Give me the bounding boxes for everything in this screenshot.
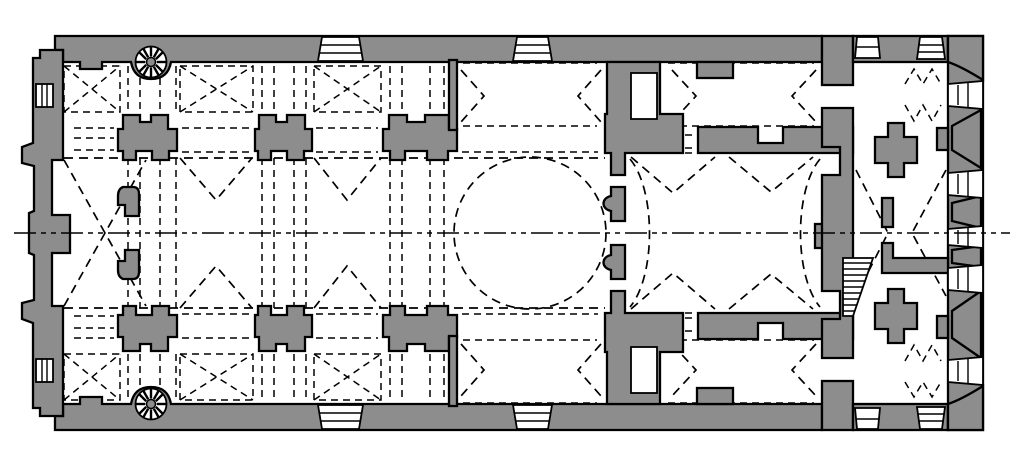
east-opening-3 — [948, 226, 983, 248]
floor-plan-image — [0, 0, 1024, 466]
jamb-south-hall-west — [449, 336, 457, 406]
spiral-staircase-north — [136, 47, 167, 78]
north-portal-4 — [917, 37, 945, 59]
pilaster-ne-hall — [697, 62, 733, 78]
pier-n4-passage — [631, 73, 657, 119]
inner-east-wall-bottom — [822, 381, 853, 430]
narthex-bar-pier-n — [882, 198, 893, 227]
west-slit-window-n — [36, 84, 53, 107]
west-slit-window-s — [36, 359, 53, 382]
spiral-staircase-south — [136, 389, 167, 420]
south-portal-1 — [318, 405, 363, 429]
north-portal-2 — [513, 37, 552, 61]
east-column-3 — [952, 246, 981, 267]
south-portal-4 — [917, 407, 945, 429]
floor-plan-svg — [0, 0, 1024, 466]
pilaster-se-hall — [697, 388, 733, 404]
east-opening-4 — [948, 265, 983, 293]
east-opening-2 — [948, 170, 983, 198]
south-portal-2 — [513, 405, 552, 429]
south-portal-3 — [855, 408, 880, 429]
jamb-north-hall-west — [449, 60, 457, 130]
east-opening-5 — [948, 357, 983, 385]
east-column-2 — [952, 196, 981, 228]
north-portal-1 — [318, 37, 363, 61]
inner-east-wall-top — [822, 36, 853, 85]
pier-s4-passage — [631, 347, 657, 393]
east-wall-respond-s — [937, 316, 948, 338]
east-opening-1 — [948, 81, 983, 109]
north-portal-3 — [855, 37, 880, 58]
east-wall-respond-n — [937, 128, 948, 150]
